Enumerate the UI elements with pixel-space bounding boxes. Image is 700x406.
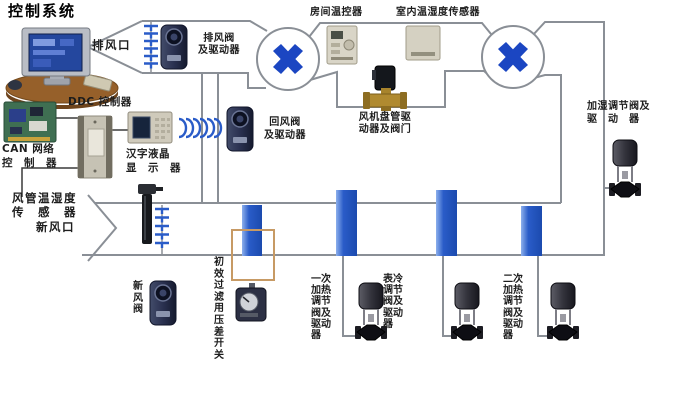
hvac-control-system-diagram: 控制系统 排风口 排风阀 及驱动器 房间温控器 室内温湿度传感器 加湿调节阀及 … <box>0 0 700 406</box>
fan-coil-valve-label: 风机盘管驱 动器及阀门 <box>351 112 419 136</box>
can-network-card <box>4 102 56 142</box>
exhaust-damper-actuator-device <box>161 25 187 69</box>
can-network-label: CAN 网络 控 制 器 <box>2 143 57 170</box>
cable-chain-icon <box>179 119 221 137</box>
ddc-controller-label: DDC 控制器 <box>68 96 132 108</box>
room-thermostat-device <box>327 26 357 64</box>
humidify-valve-device <box>609 140 641 197</box>
page-title: 控制系统 <box>8 5 76 17</box>
fresh-air-inlet-label: 新风口 <box>36 221 75 233</box>
lcd-display-label: 汉字液晶 显 示 器 <box>126 148 181 175</box>
surface-cooling-valve-device <box>451 283 483 340</box>
indoor-sensor-device <box>406 26 440 60</box>
exhaust-outlet-label: 排风口 <box>92 39 131 51</box>
primary-heating-coil-bar <box>336 190 357 256</box>
exhaust-valve-label: 排风阀 及驱动器 <box>193 33 245 57</box>
pressure-switch-device <box>236 283 266 321</box>
secondary-heating-valve-device <box>547 283 579 340</box>
secondary-heating-coil-bar <box>521 206 542 256</box>
fan-coil-valve-device <box>363 66 407 111</box>
diagram-canvas <box>0 0 700 406</box>
duct-sensor-label: 风管温湿度 传 感 器 <box>12 191 77 219</box>
room-thermostat-label: 房间温控器 <box>310 7 363 19</box>
humidify-valve-label: 加湿调节阀及 驱 动 器 <box>587 100 650 126</box>
primary-heating-valve-label: 一次加热调节阀及驱动器 <box>311 274 333 341</box>
surface-cooling-valve-label: 表冷调节阀及驱动器 <box>383 274 405 330</box>
exhaust-damper-icon <box>144 22 158 72</box>
exhaust-fan-icon <box>257 28 319 90</box>
ddc-controller-device <box>78 116 112 178</box>
lcd-display-device <box>128 112 172 143</box>
fresh-air-valve-label: 新风阀 <box>133 281 147 316</box>
fresh-air-damper-actuator-device <box>150 281 176 325</box>
secondary-heating-valve-label: 二次加热调节阀及驱动器 <box>503 274 525 341</box>
return-valve-label: 回风阀 及驱动器 <box>262 117 308 142</box>
fresh-air-damper-icon <box>155 205 169 255</box>
cooling-coil-bar <box>436 190 457 256</box>
return-damper-actuator-device <box>227 107 253 151</box>
indoor-sensor-label: 室内温湿度传感器 <box>396 7 480 19</box>
filter-pressure-switch-label: 初效过滤用压差开关 <box>214 257 228 361</box>
coil-bars <box>242 190 542 256</box>
supply-fan-icon <box>482 26 544 88</box>
